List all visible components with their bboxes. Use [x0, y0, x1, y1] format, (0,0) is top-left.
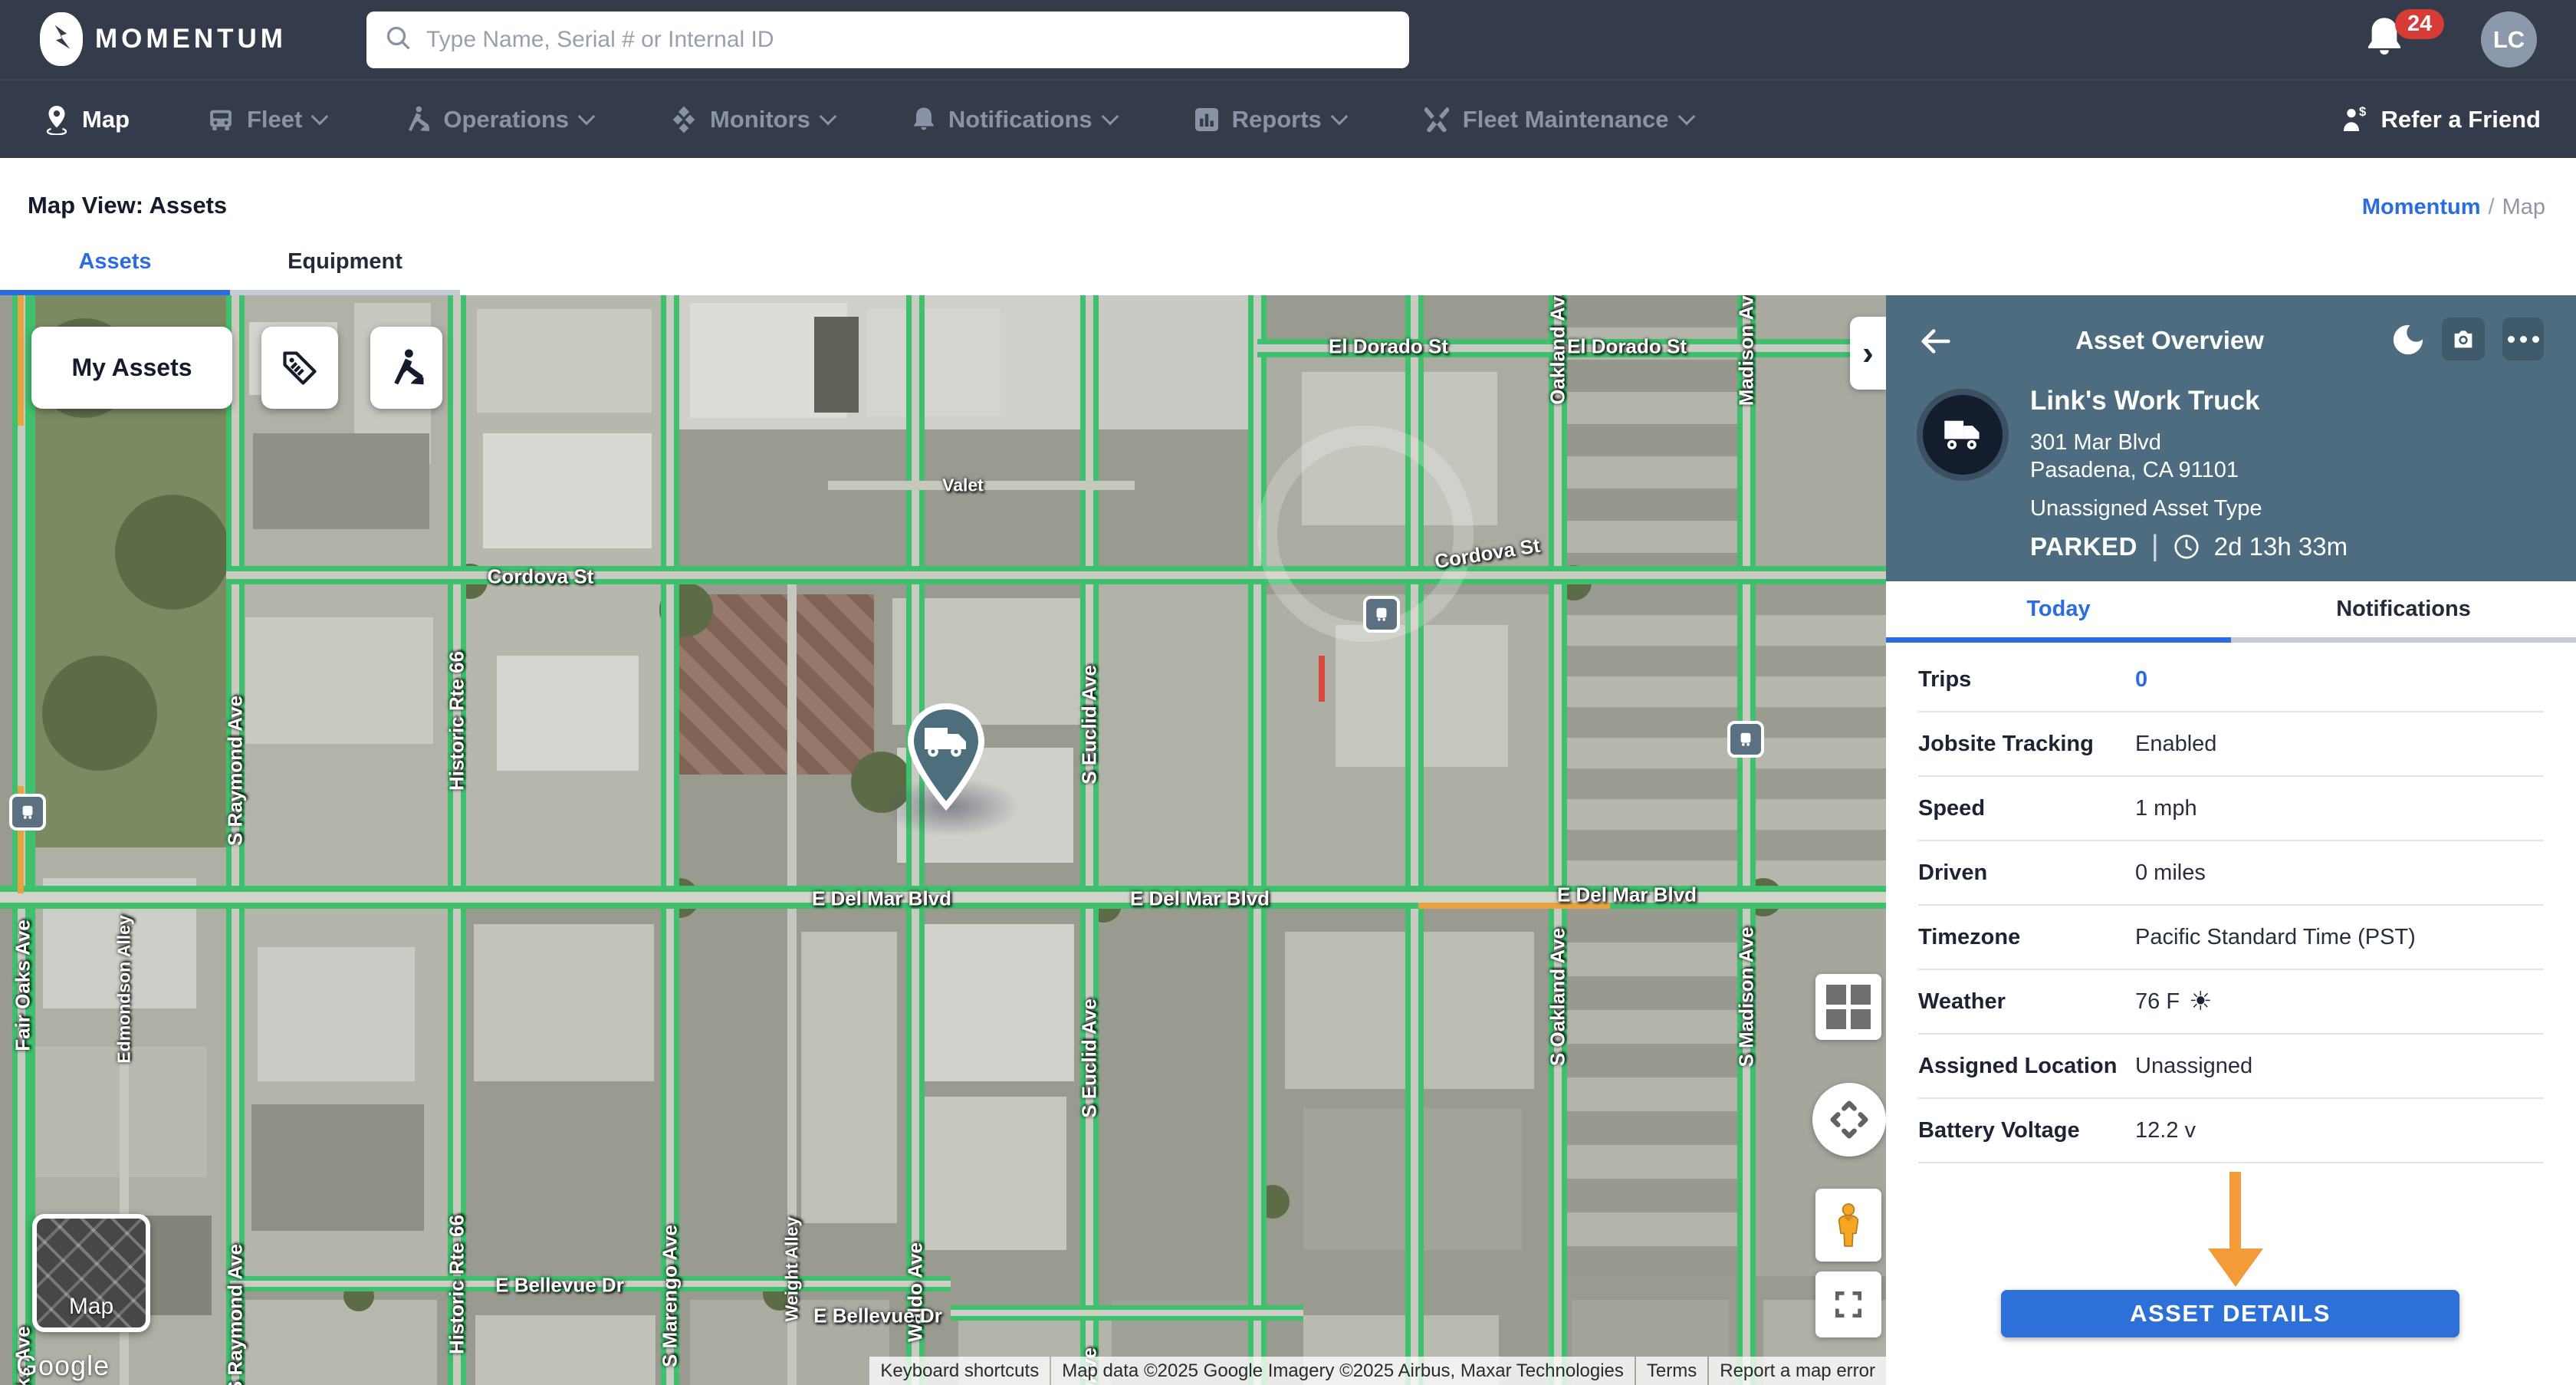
bar-chart-icon [1193, 106, 1221, 133]
transit-stop-icon[interactable] [1363, 596, 1400, 633]
report-map-error-link[interactable]: Report a map error [1709, 1357, 1886, 1385]
view-tabs: Assets Equipment [0, 233, 460, 295]
momentum-logo-icon [40, 12, 83, 66]
global-search [366, 12, 1409, 68]
pegman-control[interactable] [1815, 1189, 1881, 1262]
map-pan-control[interactable] [1812, 1083, 1886, 1156]
street-label: Edmondson Alley [114, 915, 135, 1063]
tab-today[interactable]: Today [1886, 581, 2231, 643]
row-driven: Driven 0 miles [1918, 841, 2544, 906]
nav-item-monitors[interactable]: Monitors [669, 104, 834, 135]
row-trips: Trips 0 [1918, 648, 2544, 712]
street-label: Historic Rte 66 [445, 1215, 469, 1354]
fullscreen-button[interactable] [1815, 1272, 1881, 1337]
street-label: S Raymond Ave [224, 696, 248, 846]
pegman-icon [1832, 1202, 1865, 1249]
street-label: E Del Mar Blvd [812, 887, 951, 911]
asset-marker-pin[interactable] [906, 703, 986, 814]
tag-filter-button[interactable] [261, 327, 338, 409]
clock-icon [2173, 533, 2200, 561]
nav-item-operations[interactable]: Operations [402, 104, 593, 135]
keyboard-shortcuts-link[interactable]: Keyboard shortcuts [869, 1357, 1050, 1385]
snapshot-button[interactable] [2442, 317, 2485, 360]
search-icon [385, 25, 412, 56]
google-logo: Google [16, 1350, 110, 1382]
svg-text:$: $ [2359, 104, 2367, 119]
search-input[interactable] [425, 26, 1391, 54]
street-label: S Marengo Ave [659, 1225, 682, 1367]
tab-assets[interactable]: Assets [0, 233, 230, 295]
worker-icon [402, 104, 432, 135]
chevron-down-icon [1677, 107, 1695, 125]
row-speed: Speed 1 mph [1918, 777, 2544, 841]
asset-status: PARKED | 2d 13h 33m [2030, 530, 2348, 563]
asset-details-button[interactable]: ASSET DETAILS [2001, 1290, 2459, 1337]
street-label: S Raymond Ave [224, 1244, 248, 1385]
panel-header: Asset Overview Link's Work Truck 301 Mar… [1886, 295, 2576, 581]
street-label: E Del Mar Blvd [1557, 883, 1697, 907]
street-label: Oakland Ave [1546, 295, 1570, 405]
tag-icon [280, 348, 320, 388]
asset-type: Unassigned Asset Type [2030, 496, 2262, 521]
camera-icon [2450, 326, 2476, 352]
grid-icon [1826, 985, 1871, 1029]
map-type-toggle[interactable]: Map [32, 1214, 150, 1332]
user-avatar[interactable]: LC [2481, 12, 2537, 67]
panel-tabs: Today Notifications [1886, 581, 2576, 643]
nav-item-notifications[interactable]: Notifications [911, 105, 1116, 134]
street-label: S Euclid Ave [1078, 998, 1102, 1118]
street-label: El Dorado St [1567, 335, 1687, 359]
nav-item-reports[interactable]: Reports [1193, 106, 1345, 133]
map-attribution: Keyboard shortcuts Map data ©2025 Google… [869, 1357, 1886, 1385]
panel-title: Asset Overview [1886, 326, 2453, 355]
row-jobsite-tracking: Jobsite Tracking Enabled [1918, 712, 2544, 777]
row-timezone: Timezone Pacific Standard Time (PST) [1918, 906, 2544, 970]
street-label: Fair Oaks Ave [11, 919, 35, 1051]
refer-a-friend-button[interactable]: $ Refer a Friend [2340, 104, 2541, 135]
chevron-down-icon [578, 107, 596, 125]
asset-address-line1: 301 Mar Blvd [2030, 430, 2161, 456]
tutorial-arrow-head [2208, 1248, 2263, 1287]
notification-count-badge: 24 [2395, 9, 2444, 39]
terms-link[interactable]: Terms [1636, 1357, 1707, 1385]
trips-value-link[interactable]: 0 [2135, 667, 2147, 692]
street-label: El Dorado St [1329, 335, 1448, 359]
my-assets-button[interactable]: My Assets [31, 327, 232, 409]
street-label: S Oakland Ave [1546, 928, 1570, 1066]
street-label: S Euclid Ave [1078, 665, 1102, 785]
pan-arrows-icon [1825, 1095, 1874, 1144]
brand-logo[interactable]: MOMENTUM [40, 12, 287, 66]
wrench-icon [1422, 104, 1451, 135]
transit-stop-icon[interactable] [9, 794, 46, 831]
tutorial-arrow [2229, 1172, 2241, 1248]
nav-item-fleet[interactable]: Fleet [206, 106, 326, 133]
breadcrumb: Momentum/Map [2362, 195, 2545, 220]
status-badge: PARKED [2030, 532, 2137, 561]
street-label: E Bellevue Dr [495, 1274, 624, 1298]
transit-stop-icon[interactable] [1727, 721, 1764, 758]
chevron-down-icon [311, 107, 329, 125]
map-canvas[interactable]: Fair Oaks Ave Fair Oaks Ave S Raymond Av… [0, 295, 1886, 1385]
street-label: E Del Mar Blvd [1130, 887, 1270, 911]
ellipsis-icon [2508, 336, 2539, 343]
panel-expand-button[interactable]: › [1850, 317, 1886, 390]
street-label: E Bellevue Dr [813, 1304, 942, 1328]
breadcrumb-link[interactable]: Momentum [2362, 195, 2481, 219]
vehicle-icon [206, 107, 235, 133]
page-title: Map View: Assets [28, 192, 227, 219]
tab-equipment[interactable]: Equipment [230, 233, 460, 295]
map-data-text: Map data ©2025 Google Imagery ©2025 Airb… [1051, 1357, 1635, 1385]
construction-worker-icon [386, 347, 427, 389]
moon-icon [2390, 322, 2426, 357]
status-duration: 2d 13h 33m [2214, 532, 2348, 561]
map-layers-button[interactable] [1815, 974, 1881, 1040]
chevron-down-icon [1101, 107, 1119, 125]
bell-icon [911, 105, 937, 134]
main-nav: Map Fleet Operations Monitors Notificati… [0, 79, 2576, 158]
row-battery-voltage: Battery Voltage 12.2 v [1918, 1099, 2544, 1163]
fullscreen-icon [1832, 1288, 1865, 1321]
map-pin-icon [43, 104, 71, 135]
asset-avatar [1917, 389, 2009, 481]
sun-icon: ☀ [2189, 989, 2212, 1015]
breadcrumb-current: Map [2502, 195, 2545, 219]
nav-item-map[interactable]: Map [43, 104, 130, 135]
dark-mode-button[interactable] [2388, 320, 2428, 360]
asset-detail-rows: Trips 0 Jobsite Tracking Enabled Speed 1… [1886, 648, 2576, 1163]
top-bar: MOMENTUM 24 LC [0, 0, 2576, 79]
jobsites-button[interactable] [370, 327, 442, 409]
asset-address-line2: Pasadena, CA 91101 [2030, 458, 2239, 483]
more-options-button[interactable] [2502, 317, 2544, 360]
chevron-right-icon: › [1862, 334, 1874, 373]
street-label: Madison Ave [1735, 295, 1759, 406]
sub-header: Map View: Assets Momentum/Map Assets Equ… [0, 158, 2576, 295]
refer-friend-icon: $ [2340, 104, 2371, 135]
chevron-down-icon [820, 107, 837, 125]
brand-name: MOMENTUM [95, 24, 287, 54]
asset-overview-panel: Asset Overview Link's Work Truck 301 Mar… [1886, 295, 2576, 1385]
street-label: Historic Rte 66 [445, 651, 469, 791]
nav-item-fleet-maintenance[interactable]: Fleet Maintenance [1422, 104, 1693, 135]
street-label: Cordova St [488, 565, 594, 589]
row-assigned-location: Assigned Location Unassigned [1918, 1035, 2544, 1099]
notifications-bell[interactable]: 24 [2363, 14, 2440, 75]
street-label: Valet [942, 475, 984, 496]
monitors-icon [669, 104, 698, 135]
street-label: Weight Alley [782, 1217, 803, 1322]
asset-name: Link's Work Truck [2030, 386, 2259, 416]
tab-notifications[interactable]: Notifications [2231, 581, 2576, 643]
chevron-down-icon [1330, 107, 1348, 125]
street-label: S Madison Ave [1735, 926, 1759, 1067]
row-weather: Weather 76 F☀ [1918, 970, 2544, 1035]
truck-icon [1941, 417, 1984, 452]
